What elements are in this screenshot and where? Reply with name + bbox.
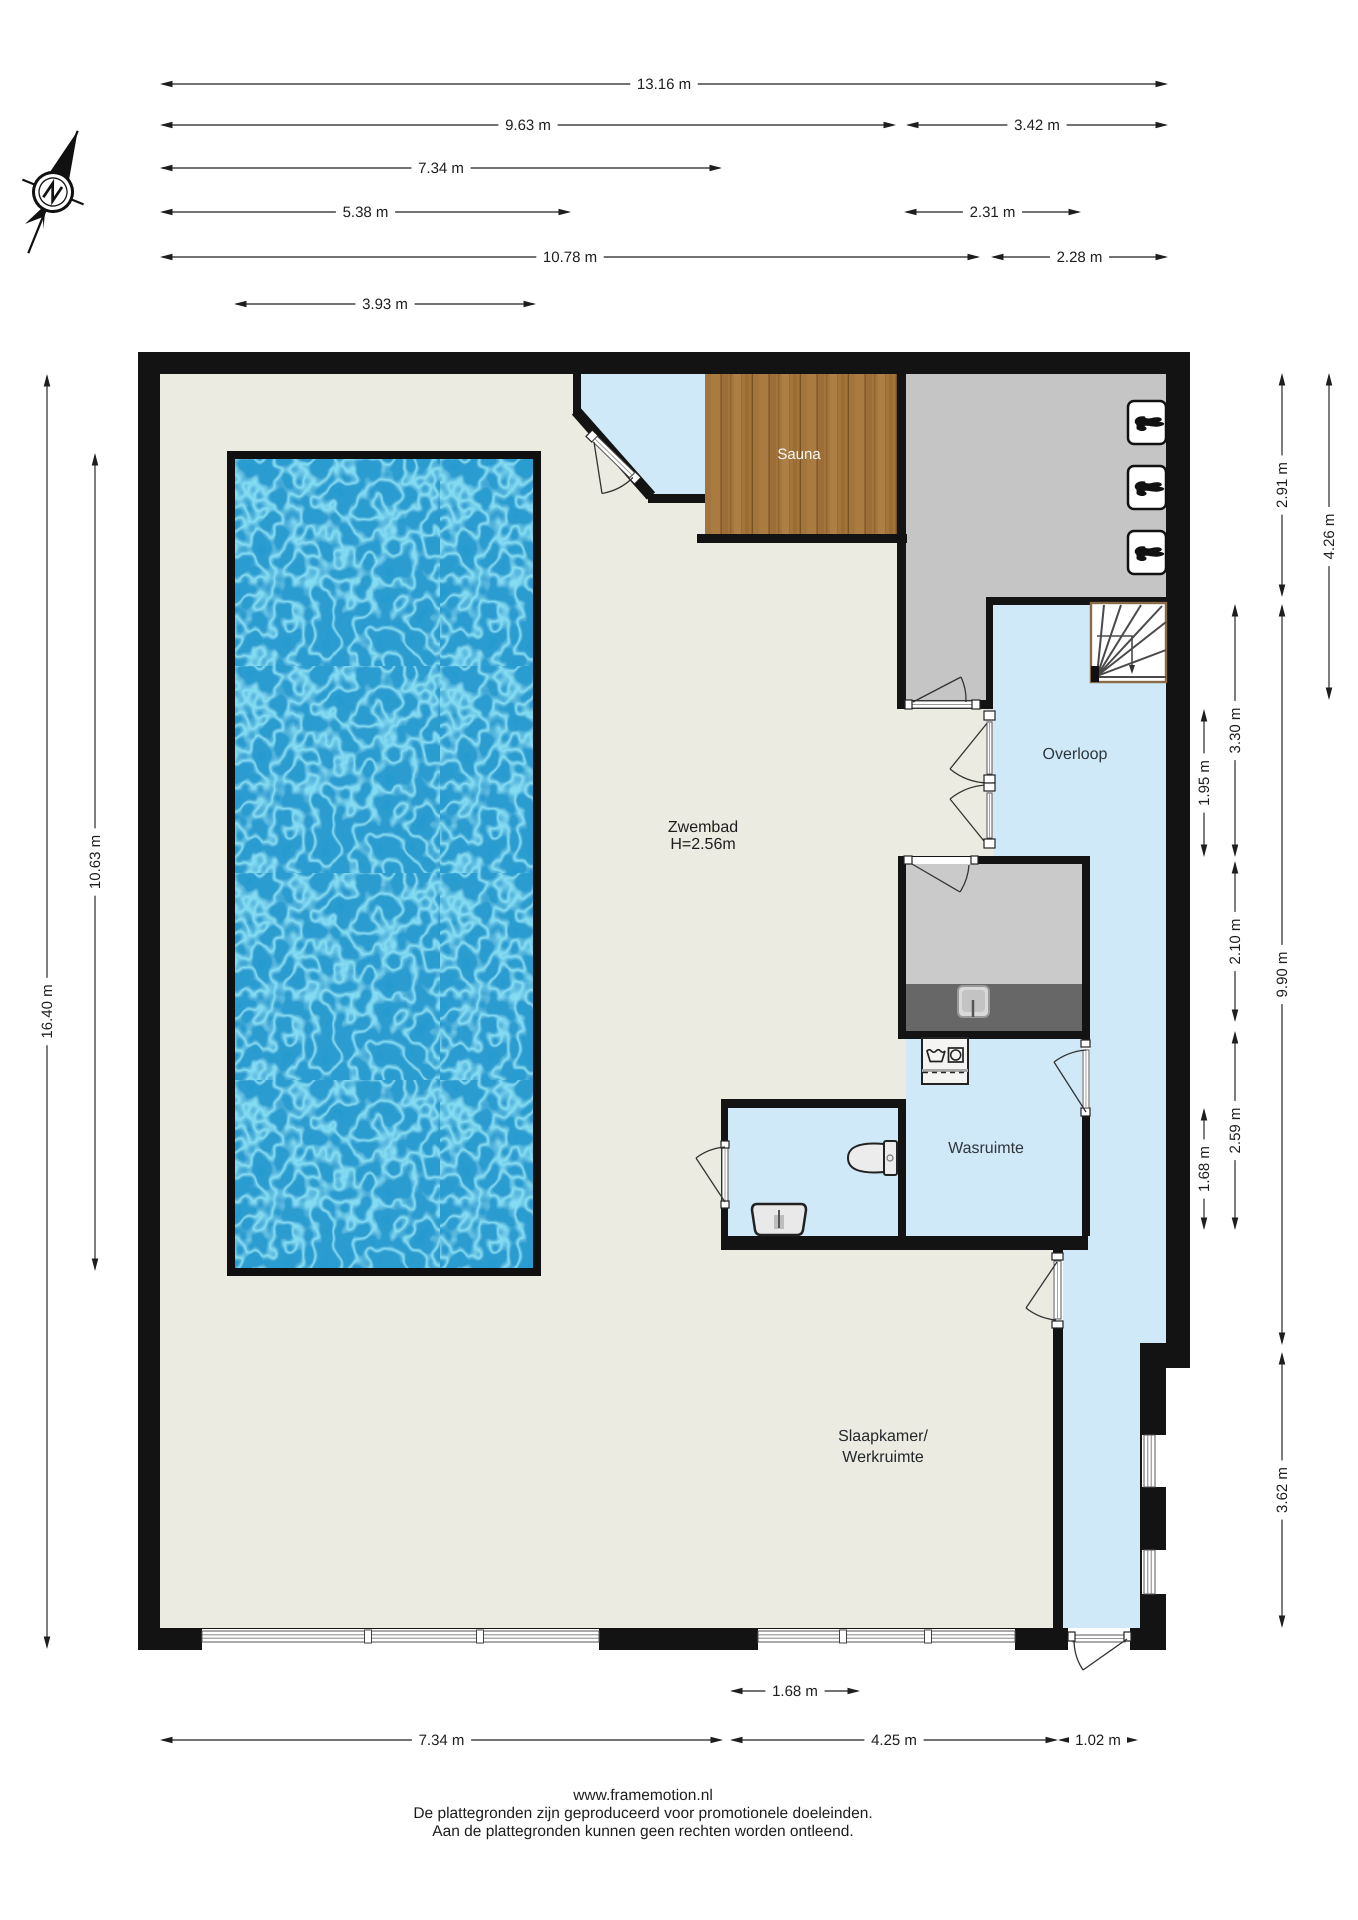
svg-text:Wasruimte: Wasruimte [948,1140,1024,1157]
svg-text:2.31 m: 2.31 m [970,204,1016,221]
svg-text:10.78 m: 10.78 m [543,249,597,266]
svg-text:13.16 m: 13.16 m [637,76,691,93]
svg-text:2.59 m: 2.59 m [1227,1108,1244,1154]
svg-text:Slaapkamer/: Slaapkamer/ [838,1428,928,1445]
svg-text:Overloop: Overloop [1043,746,1108,763]
svg-text:2.91 m: 2.91 m [1274,462,1291,508]
svg-text:1.68 m: 1.68 m [772,1683,818,1700]
svg-text:1.95 m: 1.95 m [1196,760,1213,806]
svg-text:5.38 m: 5.38 m [343,204,389,221]
svg-text:www.framemotion.nl: www.framemotion.nl [572,1787,713,1804]
svg-text:9.63 m: 9.63 m [505,117,551,134]
svg-text:Werkruimte: Werkruimte [842,1449,924,1466]
svg-text:7.34 m: 7.34 m [418,160,464,177]
svg-text:1.02 m: 1.02 m [1075,1732,1121,1749]
svg-text:Aan de plattegronden kunnen ge: Aan de plattegronden kunnen geen rechten… [432,1823,853,1840]
svg-text:3.42 m: 3.42 m [1014,117,1060,134]
svg-text:4.26 m: 4.26 m [1321,514,1338,560]
svg-text:3.62 m: 3.62 m [1274,1467,1291,1513]
svg-text:H=2.56m: H=2.56m [670,836,735,853]
svg-text:9.90 m: 9.90 m [1274,952,1291,998]
svg-text:3.30 m: 3.30 m [1227,708,1244,754]
svg-text:2.28 m: 2.28 m [1057,249,1103,266]
svg-text:4.25 m: 4.25 m [871,1732,917,1749]
svg-text:3.93 m: 3.93 m [362,296,408,313]
svg-text:7.34 m: 7.34 m [419,1732,465,1749]
svg-text:10.63 m: 10.63 m [87,835,104,889]
svg-text:1.68 m: 1.68 m [1196,1146,1213,1192]
svg-text:Sauna: Sauna [777,446,821,463]
svg-text:2.10 m: 2.10 m [1227,919,1244,965]
svg-text:Zwembad: Zwembad [668,819,738,836]
svg-text:De plattegronden zijn geproduc: De plattegronden zijn geproduceerd voor … [413,1805,872,1822]
svg-text:16.40 m: 16.40 m [39,984,56,1038]
